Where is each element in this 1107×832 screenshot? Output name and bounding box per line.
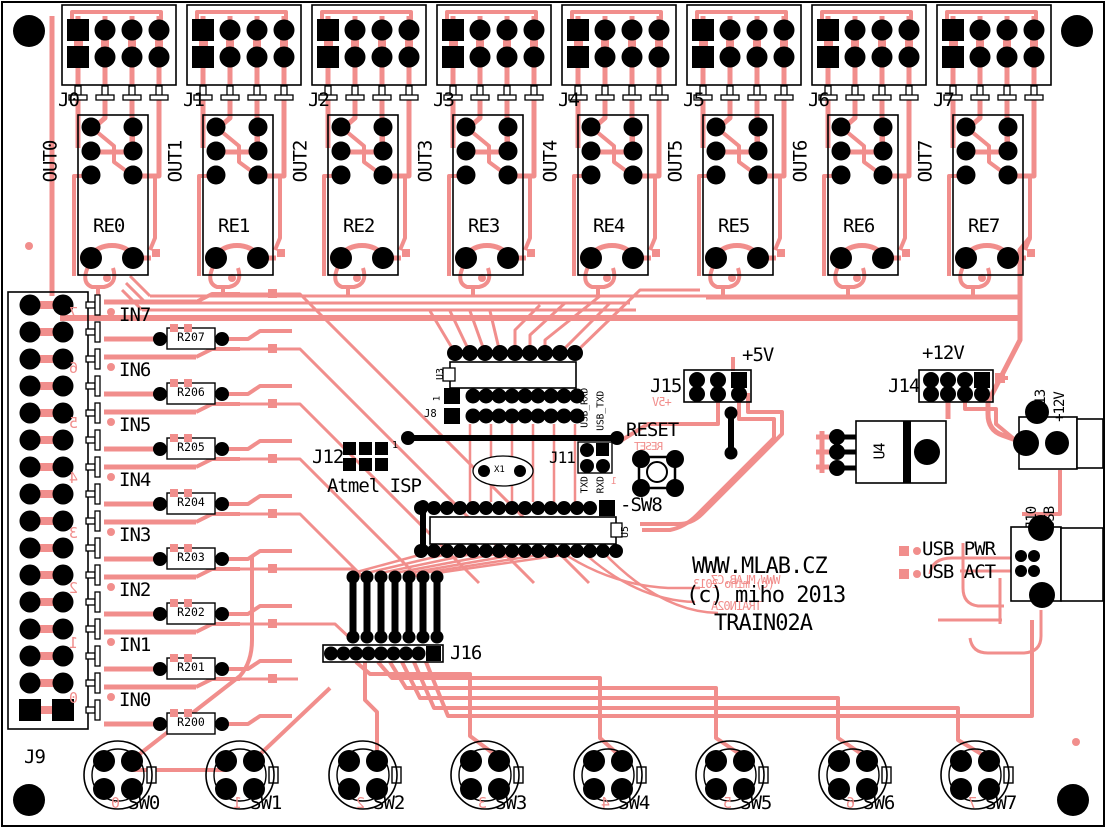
resistor-label-r207: R207 <box>167 332 215 344</box>
mirror-digit-4: 4 <box>70 471 78 486</box>
input-label-in5: IN5 <box>119 416 150 435</box>
switch-label-sw7: SW7 <box>985 794 1016 813</box>
mirror-switch-digit-5: 5 <box>724 796 732 811</box>
signal-label-usb-txd: USB_TXD <box>596 383 606 439</box>
branding-url: WWW.MLAB.CZ <box>692 556 827 578</box>
connector-label-j11: J11 <box>549 450 575 466</box>
resistor-label-r201: R201 <box>167 662 215 674</box>
pcb-board: J0 J1 J2 J3 J4 J5 J6 J7 OUT0 OUT1 OUT2 O… <box>0 0 1107 832</box>
connector-label-j12: J12 <box>312 448 343 467</box>
mirror-switch-digit-2: 2 <box>357 796 365 811</box>
mirror-pin1-sw8: 1 <box>612 477 617 487</box>
connector-label-j13: J13 <box>1034 384 1048 418</box>
connector-label-j7: J7 <box>933 91 954 110</box>
board-outline <box>1 1 1105 827</box>
output-label-out6: OUT6 <box>792 127 811 197</box>
relay-label-re6: RE6 <box>843 217 874 236</box>
mirror-switch-digit-0: 0 <box>112 796 120 811</box>
relay-label-re2: RE2 <box>343 217 374 236</box>
reset-label: RESET <box>626 421 678 440</box>
branding-copyright: (c) miho 2013 <box>686 585 845 607</box>
resistor-label-r204: R204 <box>167 497 215 509</box>
resistor-label-r202: R202 <box>167 607 215 619</box>
signal-label-usb-rxd: USB_RXD <box>580 380 590 436</box>
branding-model: TRAIN02A <box>714 613 812 635</box>
switch-label-sw6: SW6 <box>863 794 894 813</box>
input-label-in0: IN0 <box>119 691 150 710</box>
ic-label-u5: U5 <box>621 520 631 544</box>
mirror-switch-digit-7: 7 <box>969 796 977 811</box>
crystal-label-x1: X1 <box>494 466 505 475</box>
relay-label-re0: RE0 <box>93 217 124 236</box>
mirror-digit-2: 2 <box>70 581 78 596</box>
output-label-out5: OUT5 <box>667 127 686 197</box>
connector-label-j6: J6 <box>808 91 829 110</box>
connector-label-j0: J0 <box>58 91 79 110</box>
connector-label-j16: J16 <box>450 644 481 663</box>
connector-label-j8: J8 <box>424 409 437 420</box>
resistor-label-r200: R200 <box>167 717 215 729</box>
signal-label-rxd: RXD <box>596 470 606 500</box>
connector-label-j10: J10 <box>1025 501 1039 535</box>
input-label-in3: IN3 <box>119 526 150 545</box>
input-label-in1: IN1 <box>119 636 150 655</box>
connector-label-j2: J2 <box>308 91 329 110</box>
ic-label-u3: U3 <box>436 362 446 386</box>
input-label-in7: IN7 <box>119 306 150 325</box>
switch-label-sw3: SW3 <box>495 794 526 813</box>
relay-label-re3: RE3 <box>468 217 499 236</box>
relay-label-re7: RE7 <box>968 217 999 236</box>
mirror-digit-5: 5 <box>70 416 78 431</box>
led-label-usb-pwr: USB PWR <box>922 540 995 559</box>
switch-label-sw8: -SW8 <box>620 496 662 515</box>
switch-label-sw1: SW1 <box>250 794 281 813</box>
input-label-in6: IN6 <box>119 361 150 380</box>
mirror-switch-digit-3: 3 <box>479 796 487 811</box>
mirror-switch-digit-4: 4 <box>602 796 610 811</box>
isp-label: Atmel ISP <box>327 477 421 496</box>
connector-label-j5: J5 <box>683 91 704 110</box>
signal-label-txd: TXD <box>580 470 590 500</box>
switch-label-sw5: SW5 <box>740 794 771 813</box>
connector-label-j15: J15 <box>650 377 681 396</box>
resistor-label-r205: R205 <box>167 442 215 454</box>
mirror-label-plus5: +5V <box>653 396 672 408</box>
usb-type-label-j10: USB <box>1043 501 1057 535</box>
connector-label-j4: J4 <box>558 91 579 110</box>
output-label-out4: OUT4 <box>542 127 561 197</box>
switch-label-sw2: SW2 <box>373 794 404 813</box>
connector-label-j9: J9 <box>24 748 45 767</box>
pin1-label-u3: 1 <box>434 393 443 405</box>
power-label-plus5: +5V <box>742 346 773 365</box>
power-label-plus12: +12V <box>922 344 964 363</box>
connector-label-j14: J14 <box>888 377 919 396</box>
mirror-digit-3: 3 <box>70 526 78 541</box>
connector-label-j1: J1 <box>183 91 204 110</box>
mirror-label-reset: RESET <box>635 441 663 452</box>
mirror-digit-6: 6 <box>70 361 78 376</box>
led-label-usb-act: USB ACT <box>922 563 995 582</box>
input-label-in4: IN4 <box>119 471 150 490</box>
switch-label-sw4: SW4 <box>618 794 649 813</box>
output-label-out7: OUT7 <box>917 127 936 197</box>
mirror-switch-digit-1: 1 <box>234 796 242 811</box>
relay-label-re5: RE5 <box>718 217 749 236</box>
mirror-digit-1: 1 <box>70 636 78 651</box>
input-label-in2: IN2 <box>119 581 150 600</box>
output-label-out3: OUT3 <box>417 127 436 197</box>
output-label-out1: OUT1 <box>167 127 186 197</box>
mirror-digit-0: 0 <box>70 691 78 706</box>
resistor-label-r203: R203 <box>167 552 215 564</box>
switch-label-sw0: SW0 <box>128 794 159 813</box>
relay-label-re4: RE4 <box>593 217 624 236</box>
voltage-label-j13: +12V <box>1053 385 1067 429</box>
mirror-switch-digit-6: 6 <box>847 796 855 811</box>
mirror-digit-7: 7 <box>70 306 78 321</box>
regulator-label-u4: U4 <box>873 437 888 467</box>
pin1-label-j12: 1 <box>392 441 398 451</box>
output-label-out2: OUT2 <box>292 127 311 197</box>
resistor-label-r206: R206 <box>167 387 215 399</box>
connector-label-j3: J3 <box>433 91 454 110</box>
output-label-out0: OUT0 <box>42 127 61 197</box>
relay-label-re1: RE1 <box>218 217 249 236</box>
